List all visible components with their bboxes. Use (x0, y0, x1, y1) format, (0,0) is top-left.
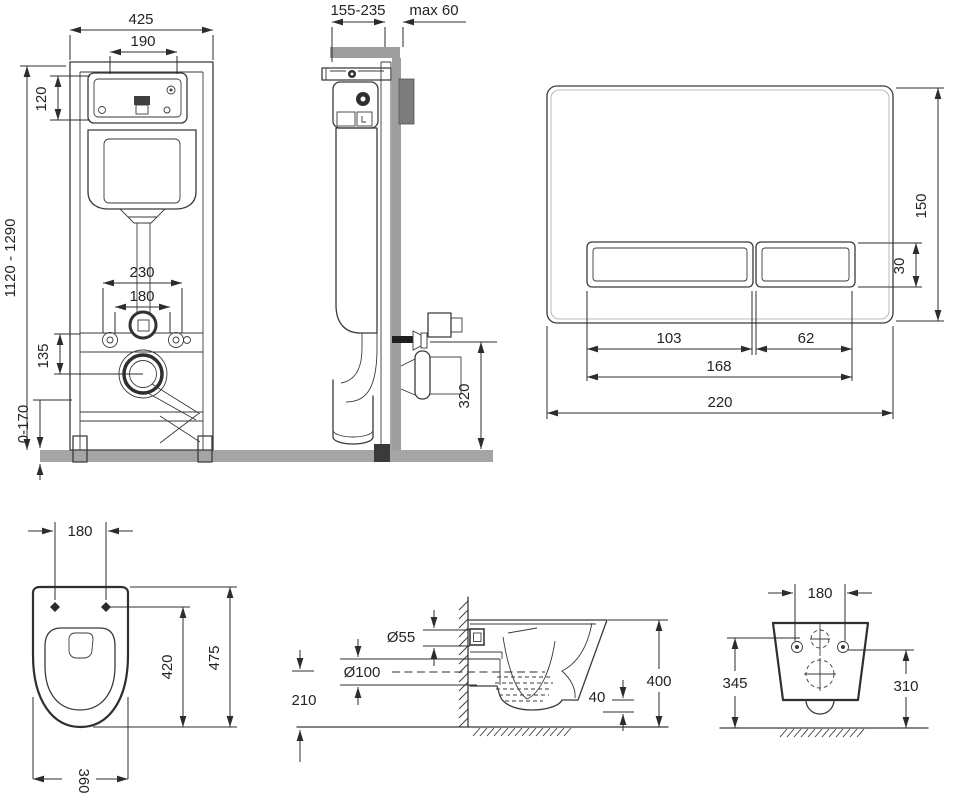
dim-buttons-width: 168 (706, 358, 731, 375)
water-level-dashes (495, 677, 553, 701)
dim-window-height: 120 (33, 86, 50, 111)
rod-cone (413, 331, 421, 350)
dim-rear-holes: 180 (807, 585, 832, 602)
diagonal-brace (146, 384, 200, 443)
dim-trap-drop: 40 (589, 689, 606, 706)
dim-bowl-length: 475 (206, 645, 223, 670)
dim-plate-height: 150 (913, 193, 930, 218)
view-flush-plate: 150 30 103 62 168 220 (547, 86, 944, 419)
tank-side (336, 128, 377, 333)
inlet-socket (470, 629, 484, 645)
dim-button-height: 30 (891, 258, 908, 275)
flush-seat-ring (130, 312, 156, 338)
top-slab (330, 47, 400, 58)
seat-fixing-holes (50, 602, 111, 612)
flush-opening (69, 633, 93, 658)
dim-height-left: 345 (722, 675, 747, 692)
view-frame-front: 425 190 1120 - 1290 120 230 180 135 0-17… (2, 11, 213, 480)
dim-outlet-diameter: Ø100 (344, 664, 381, 681)
service-window-fittings (99, 86, 176, 117)
flush-plate-inner-edge (551, 90, 889, 319)
dim-fix-outer: 230 (129, 264, 154, 281)
bowl-profile (469, 620, 607, 710)
flush-bend-outer (346, 333, 377, 402)
dim-drain-drop: 135 (35, 343, 52, 368)
threaded-rod (392, 336, 413, 343)
flush-button-small (756, 242, 855, 287)
trap-curve (562, 623, 592, 698)
cistern-head-side (333, 82, 378, 128)
ground-hatch (780, 729, 864, 737)
dim-right-button: 62 (798, 330, 815, 347)
flush-button-large (587, 242, 753, 287)
bowl-outline-top (33, 587, 128, 727)
view-bowl-top: 180 420 475 360 (28, 522, 237, 794)
floor-band (40, 450, 493, 462)
frame-foot-side (374, 444, 390, 462)
flush-funnel (120, 209, 165, 223)
seat-ring (45, 628, 115, 710)
view-bowl-side: Ø55 Ø100 210 40 400 (291, 597, 671, 762)
flush-bend-inner (341, 333, 362, 383)
dim-foot-range: 0-170 (15, 405, 32, 443)
trap-cylinder (333, 380, 373, 444)
dim-fix-inner: 180 (129, 288, 154, 305)
dim-frame-width: 425 (128, 11, 153, 28)
dim-seat-holes: 180 (67, 523, 92, 540)
frame-rail-side (381, 62, 391, 450)
wall-bracket-plate (399, 79, 414, 124)
dim-height-right: 310 (893, 678, 918, 695)
dim-outlet-height: 320 (456, 383, 473, 408)
dim-install-height: 1120 - 1290 (2, 219, 19, 298)
dim-plate-width: 220 (707, 394, 732, 411)
dim-left-button: 103 (656, 330, 681, 347)
drain-bump (806, 700, 834, 714)
wall-hatch (459, 601, 468, 727)
bowl-outline-rear (773, 623, 868, 700)
view-bowl-rear: 180 345 310 (720, 584, 928, 737)
outlet-flange (415, 351, 430, 399)
floor-hatch (473, 728, 571, 736)
dim-bowl-height: 400 (646, 673, 671, 690)
dim-bowl-width: 360 (75, 768, 92, 793)
technical-drawing-canvas: 425 190 1120 - 1290 120 230 180 135 0-17… (0, 0, 954, 800)
installation-drawing: 425 190 1120 - 1290 120 230 180 135 0-17… (0, 0, 954, 800)
dim-frame-depth: 155-235 (330, 2, 385, 19)
dim-inlet-diameter: Ø55 (387, 629, 415, 646)
ext-lines-plate-right (858, 88, 944, 321)
view-frame-side: 155-235 max 60 320 (322, 2, 497, 462)
dim-seat-length: 420 (159, 654, 176, 679)
inlet-connector (428, 313, 451, 337)
bowl-funnel (503, 637, 555, 699)
dim-wall-max: max 60 (409, 2, 458, 19)
dim-tank-width: 190 (130, 33, 155, 50)
cistern-inner (104, 139, 180, 203)
dim-outlet-height: 210 (291, 692, 316, 709)
